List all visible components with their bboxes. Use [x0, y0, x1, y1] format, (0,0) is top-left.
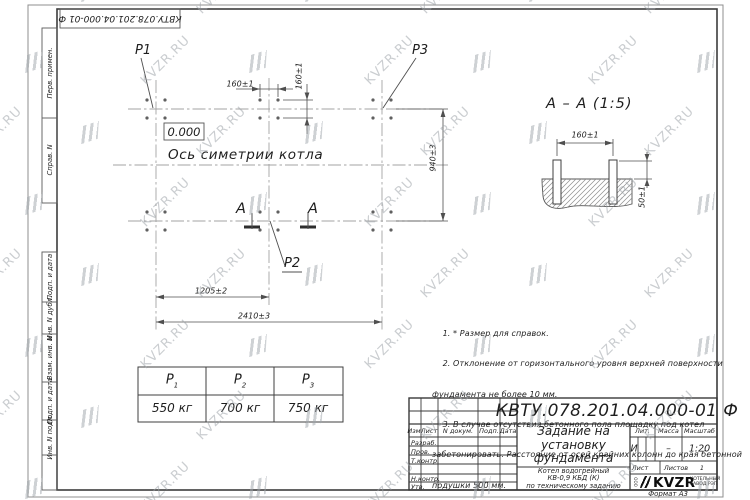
section-view-title: А – А (1:5)	[546, 96, 633, 112]
col-data: Дата	[500, 427, 517, 435]
margin-label-inv-podl: Инв. N подл.	[46, 415, 54, 460]
load-table-header-p3: P3	[302, 373, 314, 390]
dim-940: 940±3	[429, 144, 438, 171]
lit-label: Лит.	[635, 427, 650, 435]
load-point-label-p1: P1	[135, 43, 151, 58]
drawing-sheet: КВТУ.078.201.04.000-01 Ф Перв. примен. С…	[0, 0, 750, 500]
margin-label-inv-dubl: Инв. N дубл.	[46, 296, 54, 341]
margin-strip	[42, 9, 180, 490]
note-line: 1. * Размер для справок.	[432, 329, 717, 339]
format-label: Формат А3	[648, 490, 688, 498]
col-podp: Подп.	[479, 427, 499, 435]
listov-value: 1	[700, 464, 704, 472]
margin-label-sprav-n: Справ. N	[46, 144, 54, 175]
dim-160-top: 160±1	[226, 80, 253, 89]
note-line: фундамента не более 10 мм.	[432, 390, 717, 400]
masshtab-value: 1:20	[689, 444, 710, 455]
masshtab-label: Масштаб	[684, 427, 715, 435]
massa-value: –	[666, 444, 671, 455]
listov-label: Листов	[664, 464, 688, 472]
zero-level-value: 0.000	[168, 125, 201, 139]
margin-label-perv-primen: Перв. примен.	[46, 47, 54, 98]
kvzr-logo-caption: КОТЕЛЬНЫЙ ЗАВОД РЭП	[690, 477, 720, 487]
centerlines	[113, 78, 448, 330]
row-prov: Пров.	[411, 448, 430, 456]
company-prefix: ООО	[634, 477, 639, 486]
col-docum: N докум.	[443, 427, 473, 435]
col-list: Лист	[421, 427, 437, 435]
boiler-axis-label: Ось симетрии котла	[168, 147, 323, 163]
list-label: Лист	[632, 464, 648, 472]
load-table-header-p2: P2	[234, 373, 246, 390]
load-table-header-p1: P1	[166, 373, 178, 390]
section-letter-left: А	[236, 201, 246, 217]
section-view-graphics	[495, 139, 727, 215]
section-letter-right: А	[308, 201, 318, 217]
margin-label-podp-data-1: Подп. и дата	[46, 254, 54, 300]
section-dim-160: 160±1	[571, 131, 598, 140]
row-utv: Утв.	[411, 483, 425, 491]
load-point-label-p2: P2	[284, 256, 300, 271]
title-block-doc-number: КВТУ.078.201.04.000-01 Ф	[496, 401, 738, 421]
drawing-subtitle: Котел водогрейный КВ-0,9 КБД (К) по техн…	[517, 468, 630, 490]
massa-label: Масса	[658, 427, 679, 435]
drawing-title: Задание на установку фундамента	[517, 425, 630, 466]
dim-160-side: 160±1	[295, 62, 304, 89]
dim-2410: 2410±3	[238, 312, 270, 321]
section-dim-50: 50±1	[638, 186, 647, 208]
lit-value: И	[630, 444, 637, 455]
row-tkontr: Т.контр.	[411, 457, 439, 465]
note-line: 2. Отклонение от горизонтального уровня …	[432, 359, 717, 369]
dim-1205: 1205±2	[195, 287, 227, 296]
row-nkontr: Н.контр.	[411, 475, 440, 483]
load-table-value-p1: 550 кг	[152, 401, 192, 415]
top-stamp-doc-number: КВТУ.078.201.04.000-01 Ф	[58, 13, 181, 23]
kvzr-logo-text: KVZR	[653, 475, 695, 491]
load-table-value-p3: 750 кг	[288, 401, 328, 415]
row-razrab: Разраб.	[411, 439, 437, 447]
load-point-label-p3: P3	[412, 43, 428, 58]
margin-label-vzam-inv: Взам. инв. N	[46, 336, 54, 380]
load-table-value-p2: 700 кг	[220, 401, 260, 415]
